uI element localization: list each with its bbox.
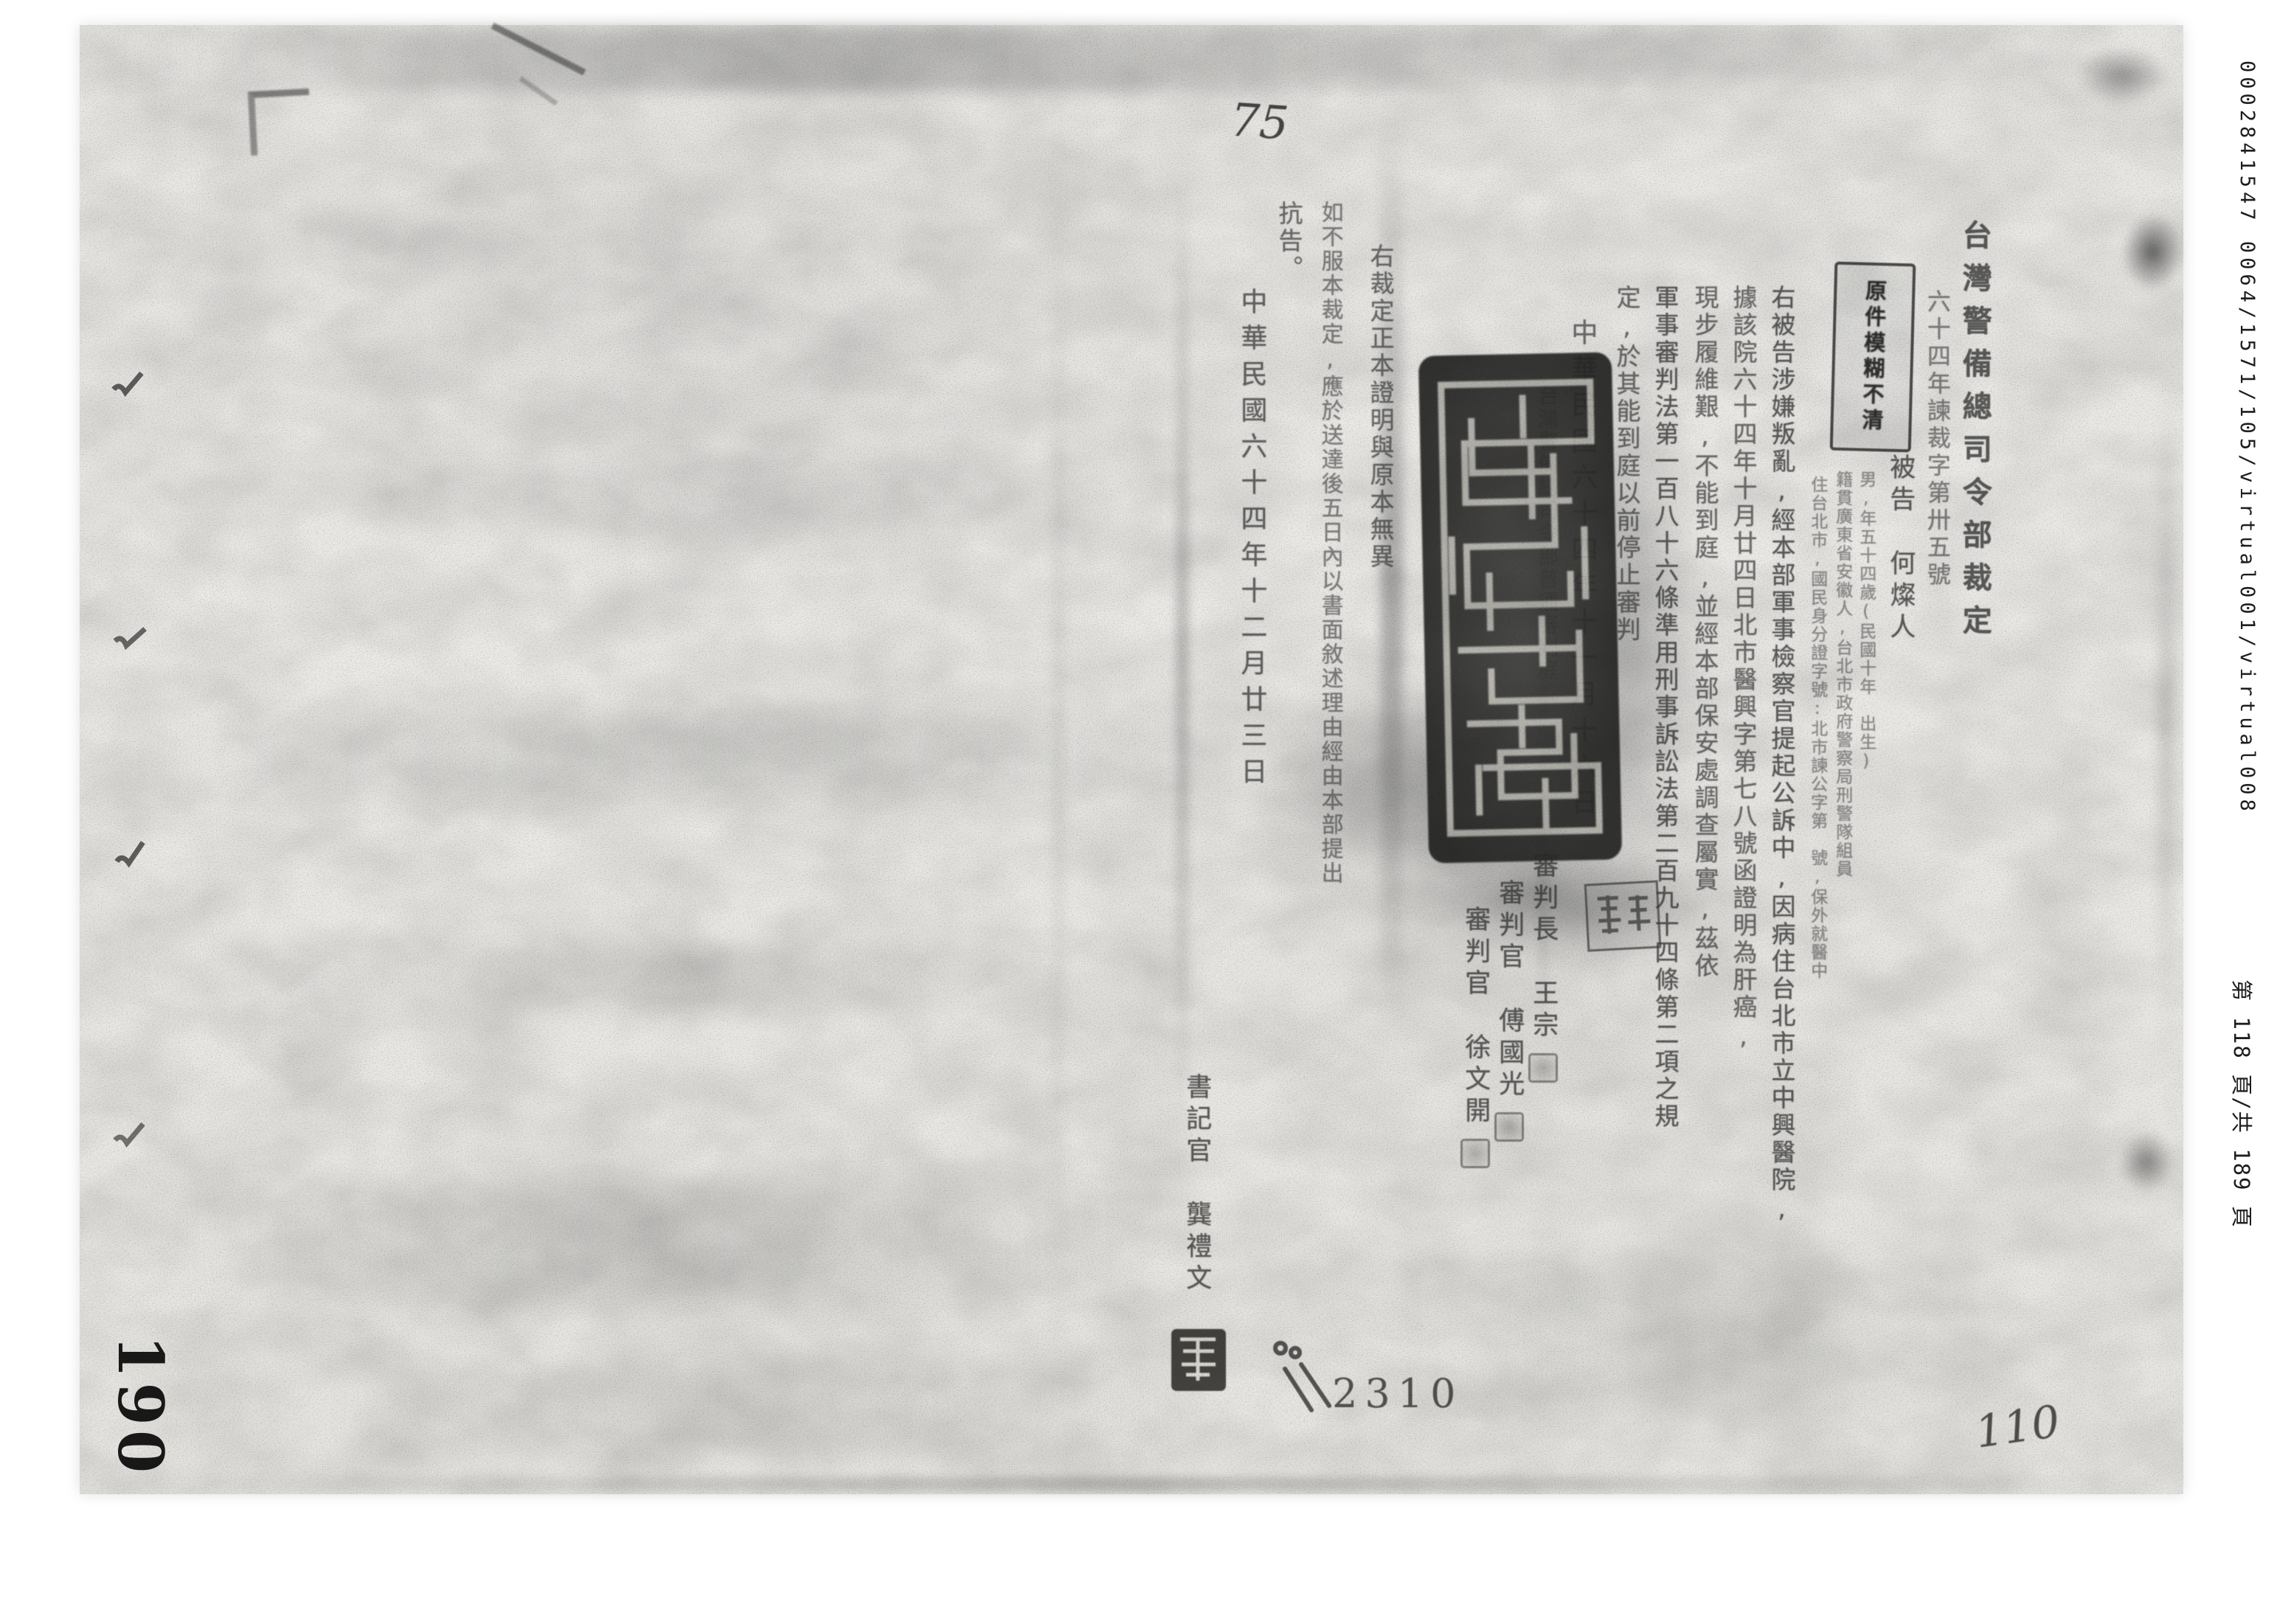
- binding-mark: [111, 1118, 149, 1159]
- cert-line: 抗告。: [1275, 201, 1302, 282]
- binding-mark: [108, 619, 151, 665]
- stamped-number: 2310: [1332, 1370, 1463, 1417]
- clerk-label: 書記官: [1182, 1073, 1211, 1168]
- handwritten-note-top: 75: [1229, 92, 1291, 150]
- judge-role: 審判官: [1460, 906, 1490, 1001]
- corner-fold-mark: [248, 89, 312, 156]
- judge-name: 徐文開: [1460, 1033, 1490, 1128]
- spacer: [1196, 1168, 1197, 1201]
- judge-seal-icon: [1460, 1139, 1490, 1168]
- clerk-seal-stamp: [1171, 1329, 1226, 1391]
- clerk-line: 書記官龔禮文: [1182, 1073, 1210, 1296]
- defendant-name: 何燦人: [1885, 549, 1915, 645]
- body-line: 軍事審判法第一百八十六條準用刑事訴訟法第二百九十四條第二項之規: [1651, 285, 1678, 1131]
- defendant-detail-line: 男,年五十四歲(民國十年 出生): [1856, 471, 1875, 772]
- judge-row: 審判官徐文開: [1460, 906, 1490, 1168]
- case-number: 六十四年諫裁字第卅五號: [1924, 289, 1950, 589]
- body-line: 據該院六十四年十月廿四日北市醫興字第七八號函證明為肝癌,: [1729, 285, 1756, 1053]
- blur-notice-stamp: 原件模糊不清: [1830, 262, 1916, 453]
- archive-reference-number: 0002841547 0064/1571/105/virtual001/virt…: [2236, 60, 2259, 816]
- judge-row: 審判長王宗: [1528, 852, 1558, 1083]
- defendant-line: 被告何燦人: [1885, 454, 1914, 645]
- review-stamp: [1584, 880, 1662, 951]
- defendant-detail-line: 籍貫廣東省安徽人,台北市政府警察局刑警隊組員: [1832, 471, 1851, 878]
- blur-notice-stamp-text: 原件模糊不清: [1859, 280, 1887, 435]
- judge-name: 王宗: [1528, 979, 1558, 1043]
- spacer: [1474, 1001, 1476, 1033]
- body-line: 右被告涉嫌叛亂,經本部軍事檢察官提起公訴中,因病住台北市立中興醫院,: [1767, 285, 1795, 1226]
- body-line: 現步履維艱,不能到庭,並經本部保安處調查屬實,茲依: [1691, 285, 1718, 980]
- cert-line: 如不服本裁定,應於送達後五日內以書面敘述理由經由本部提出: [1317, 201, 1342, 886]
- folio-number: 190: [109, 1335, 171, 1477]
- archive-page-indicator: 第 118 頁/共 189 頁: [2228, 979, 2259, 1229]
- cert-line: 右裁定正本證明與原本無異: [1366, 243, 1393, 571]
- review-stamp-glyphs: [1587, 883, 1659, 950]
- page-title: 台灣警備總司令部裁定: [1958, 220, 1991, 648]
- judge-seal-icon: [1494, 1112, 1524, 1142]
- spacer: [1542, 947, 1544, 979]
- defendant-label: 被告: [1885, 454, 1915, 517]
- handwritten-squiggle: [1269, 1336, 1342, 1417]
- defendant-detail-line: 住台北市,國民身分證字號:北市諫公字第 號,保外就醫中: [1807, 476, 1826, 980]
- binding-mark: [109, 367, 148, 409]
- judge-row: 審判官傅國光: [1494, 879, 1524, 1142]
- judge-name: 傅國光: [1494, 1007, 1524, 1102]
- cert-date: 中華民國六十四年十二月廿三日: [1236, 288, 1266, 794]
- scanned-document-page: 台灣警備總司令部裁定 六十四年諫裁字第卅五號 原件模糊不清 被告何燦人 男,年五…: [0, 0, 2277, 1624]
- spacer: [1899, 517, 1901, 549]
- judge-role: 審判長: [1528, 852, 1558, 947]
- judge-seal-icon: [1528, 1053, 1558, 1083]
- official-seal-stamp: [1418, 352, 1622, 863]
- clerk-seal-glyphs: [1171, 1329, 1226, 1391]
- seal-pattern: [1418, 352, 1622, 863]
- spacer: [1508, 974, 1510, 1007]
- judge-role: 審判官: [1494, 879, 1524, 974]
- clerk-name: 龔禮文: [1182, 1201, 1211, 1296]
- binding-mark: [110, 836, 153, 881]
